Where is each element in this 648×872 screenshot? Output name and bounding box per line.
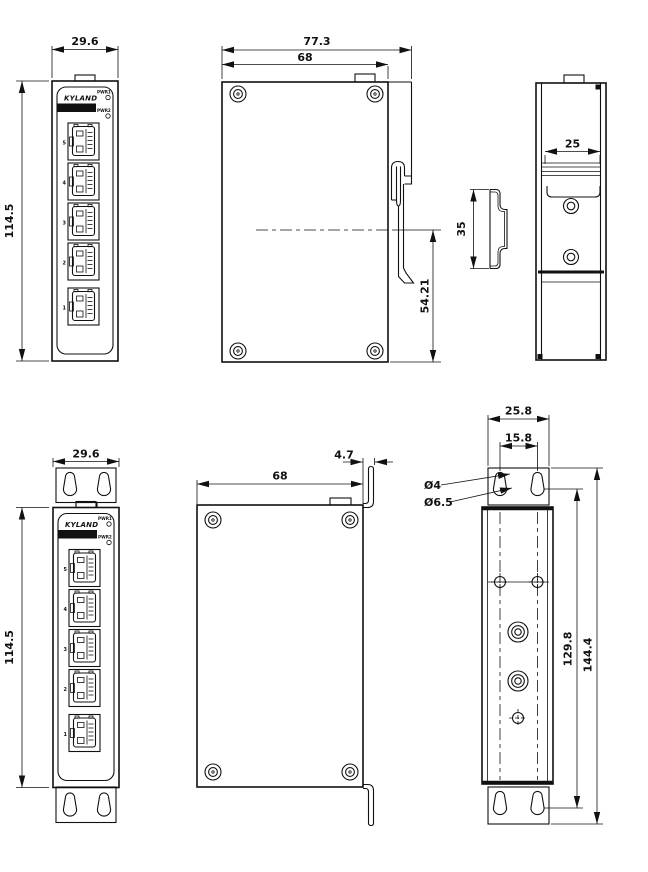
- dim-label: 129.8: [562, 632, 575, 667]
- dim-label: 29.6: [72, 448, 99, 461]
- dim-label: 4.7: [334, 449, 354, 462]
- dim-label: 25: [565, 138, 580, 151]
- mechanical-drawing-page: KYLAND PWR1 PWR2 5 4 3 2 1 29.6: [0, 0, 648, 872]
- corner-mark: [596, 85, 601, 90]
- dim-label: 25.8: [505, 405, 532, 418]
- dim-label: 68: [297, 51, 312, 64]
- dim-label: 68: [272, 470, 287, 483]
- dimensional-drawing-canvas: KYLAND PWR1 PWR2 5 4 3 2 1 29.6: [0, 0, 648, 872]
- dim-label: Ø6.5: [424, 496, 453, 509]
- paper-background: [0, 0, 648, 872]
- dim-label: Ø4: [424, 479, 441, 492]
- dim-label: 114.5: [3, 630, 16, 665]
- corner-mark: [596, 354, 601, 359]
- dim-label: 15.8: [505, 432, 532, 445]
- dim-label: 54.21: [419, 279, 432, 314]
- dim-label: 77.3: [303, 35, 330, 48]
- dim-label: 144.4: [582, 637, 595, 672]
- dim-label: 29.6: [71, 35, 98, 48]
- corner-mark: [538, 354, 543, 359]
- dim-label: 114.5: [3, 204, 16, 239]
- dim-label: 35: [455, 221, 468, 236]
